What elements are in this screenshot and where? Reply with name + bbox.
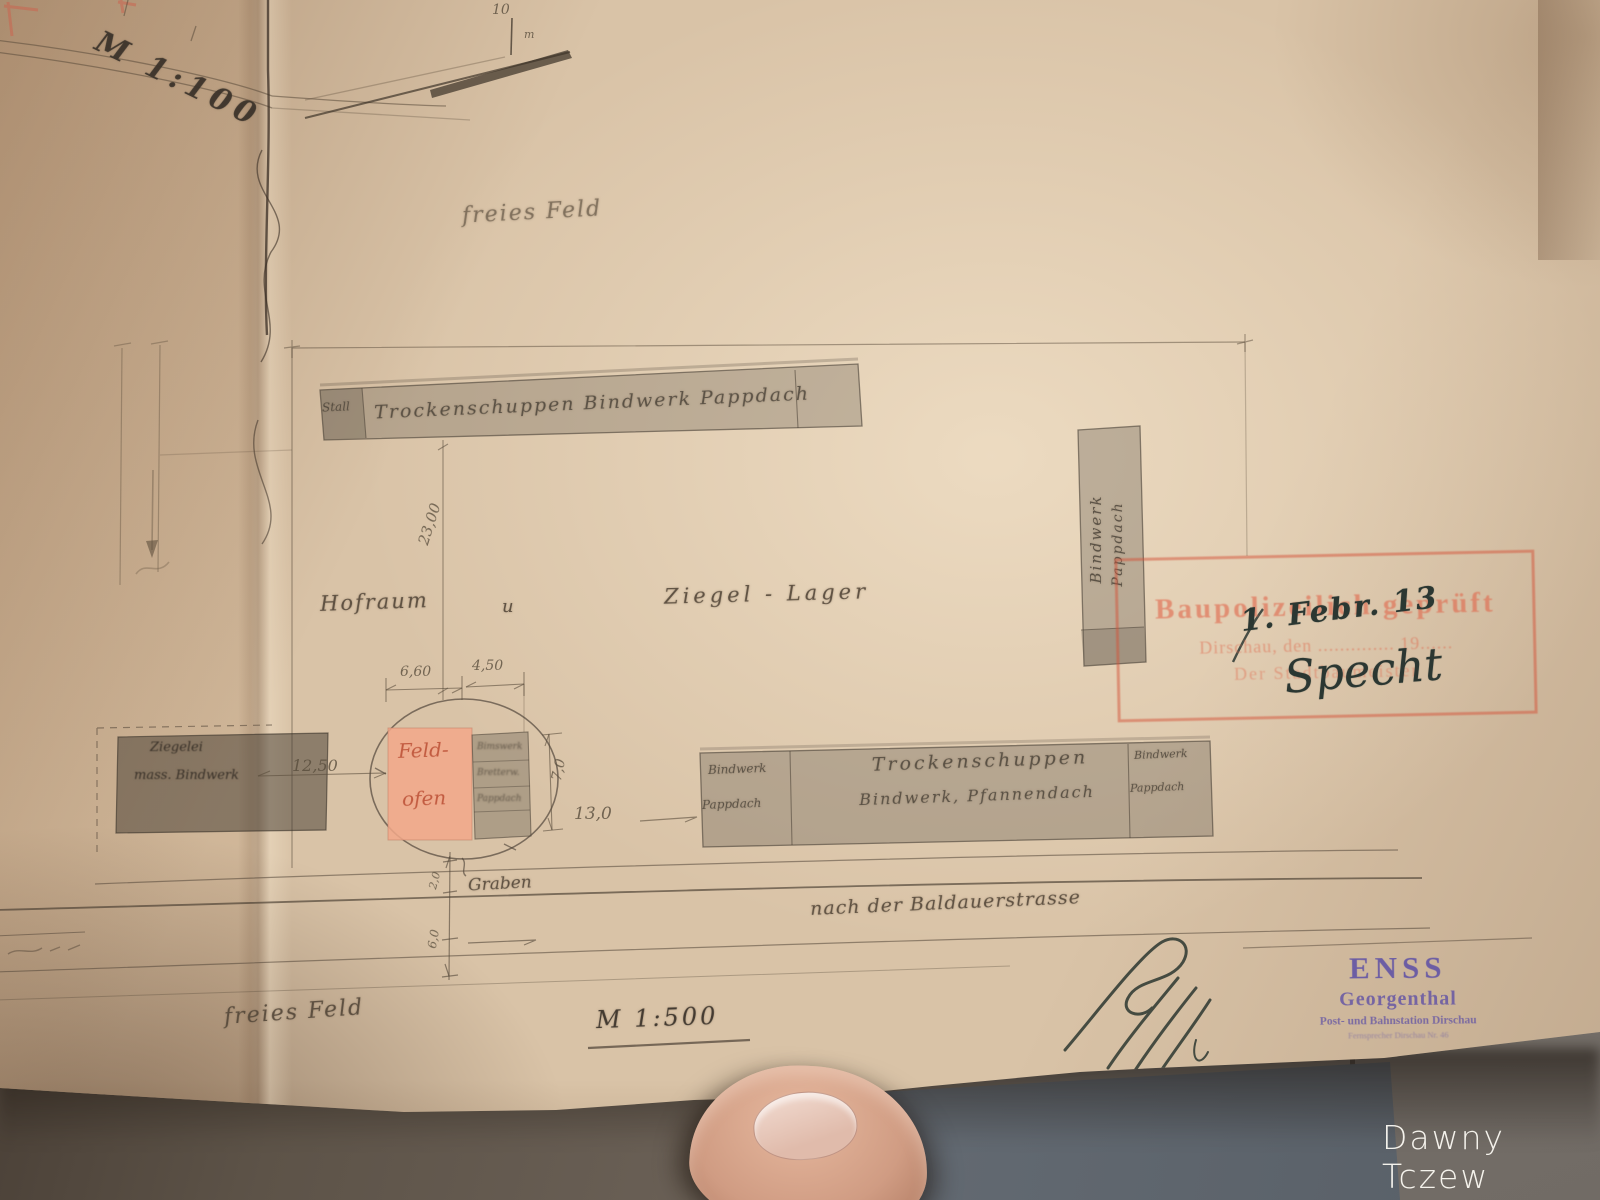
bottom-strip-left-2: Pappdach bbox=[702, 796, 762, 812]
scale-underline bbox=[588, 1040, 750, 1048]
feldofen-label-1: Feld- bbox=[398, 737, 449, 763]
binding-thread bbox=[254, 0, 280, 544]
label-und: u bbox=[502, 596, 514, 617]
scale-label-1-500: M 1:500 bbox=[596, 1002, 719, 1034]
thumb-nail bbox=[751, 1088, 859, 1163]
dim-660: 6,60 bbox=[400, 664, 431, 680]
second-sheet-edge bbox=[1538, 0, 1600, 260]
dim-130: 13,0 bbox=[574, 804, 612, 824]
watermark-text: Dawny Tczew bbox=[1382, 1118, 1600, 1196]
road-lines bbox=[0, 850, 1430, 1000]
feldofen-label-2: ofen bbox=[402, 785, 447, 811]
dim-70 bbox=[542, 733, 563, 831]
scale-bar-ten: 10 bbox=[492, 2, 510, 18]
left-building-group bbox=[97, 725, 386, 852]
left-building-label-1: Ziegelei bbox=[150, 740, 203, 755]
top-strip-cell-label: Stall bbox=[322, 399, 351, 414]
bottom-strip-right-1: Bindwerk bbox=[1134, 747, 1188, 762]
purple-stamp-name: ENSS bbox=[1298, 949, 1498, 987]
line-above-stamp bbox=[1243, 938, 1532, 948]
annex-label-3: Pappdach bbox=[477, 794, 522, 804]
bottom-strip-left-1: Bindwerk bbox=[708, 761, 767, 777]
purple-stamp-station: Post- und Bahnstation Dirschau bbox=[1298, 1014, 1498, 1028]
faint-marks bbox=[8, 945, 80, 954]
down-arrowhead bbox=[146, 540, 158, 558]
plan-paper-sheet: M 1:100 10 m freies Feld Stall Trockensc… bbox=[0, 0, 1600, 1200]
dim-660-450 bbox=[386, 672, 524, 732]
label-graben: Graben bbox=[468, 872, 533, 895]
purple-company-stamp: ENSS Georgenthal Post- und Bahnstation D… bbox=[1298, 949, 1499, 1041]
annex-label-1: Bimswerk bbox=[477, 742, 522, 752]
dim-450: 4,50 bbox=[472, 658, 503, 674]
dim-23-line bbox=[438, 440, 448, 700]
left-building-label-2: mass. Bindwerk bbox=[134, 768, 239, 783]
annex-label-2: Bretterw. bbox=[477, 768, 520, 778]
bottom-strip-right-2: Pappdach bbox=[1130, 780, 1185, 795]
left-sheet-lines bbox=[114, 341, 292, 585]
label-hofraum: Hofraum bbox=[320, 588, 430, 616]
right-building-label-1: Bindwerk bbox=[1087, 459, 1105, 619]
photo-of-site-plan: M 1:100 10 m freies Feld Stall Trockensc… bbox=[0, 0, 1600, 1200]
purple-stamp-phone: Fernsprecher Dirschau Nr. 46 bbox=[1298, 1029, 1498, 1041]
purple-stamp-place: Georgenthal bbox=[1298, 987, 1498, 1012]
ink-signature-flourish bbox=[1065, 939, 1210, 1075]
feldofen-group bbox=[370, 699, 558, 876]
scale-bar-unit: m bbox=[524, 28, 534, 41]
dim-1250: 12,50 bbox=[292, 756, 338, 775]
